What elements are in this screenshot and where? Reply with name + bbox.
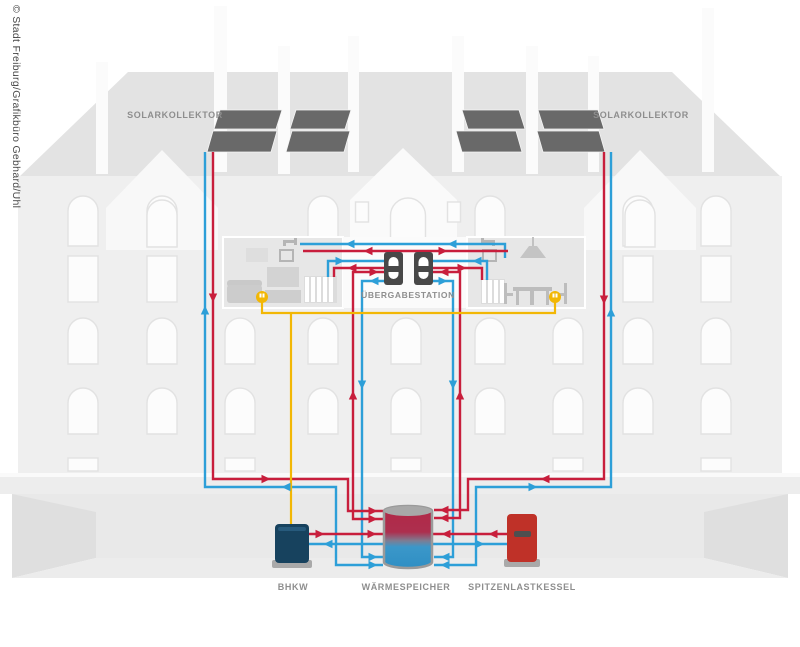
- window: [391, 318, 421, 364]
- window: [68, 458, 98, 471]
- window: [308, 318, 338, 364]
- window: [147, 200, 177, 247]
- window: [391, 388, 421, 434]
- label-solar-left: SOLARKOLLEKTOR: [127, 110, 223, 120]
- outlet-icon-right: [549, 291, 561, 303]
- window: [147, 318, 177, 364]
- label-chp: BHKW: [278, 582, 308, 592]
- solar-panel: [286, 131, 350, 152]
- window: [147, 256, 177, 302]
- solar-panel: [456, 131, 522, 152]
- transfer-unit-right: [414, 252, 433, 285]
- chimney: [96, 62, 108, 174]
- window: [701, 196, 731, 246]
- solar-panel: [290, 110, 351, 129]
- window: [701, 458, 731, 471]
- window: [701, 318, 731, 364]
- radiator-left: [304, 276, 337, 303]
- solar-panel: [207, 131, 277, 152]
- boiler-vent: [514, 531, 531, 537]
- energy-system-diagram: © Stadt Freiburg/Grafikbüro Gebhard/Uhl …: [0, 0, 800, 647]
- sidewalk-edge: [0, 473, 800, 477]
- transfer-unit-left: [384, 252, 403, 285]
- window: [391, 458, 421, 471]
- sideboard: [265, 290, 301, 303]
- chimney: [348, 36, 359, 172]
- window: [68, 196, 98, 246]
- label-transfer-station: ÜBERGABESTATION: [361, 290, 455, 300]
- solar-panel: [462, 110, 525, 129]
- window: [701, 256, 731, 302]
- label-peak-boiler: SPITZENLASTKESSEL: [468, 582, 576, 592]
- sidewalk: [0, 477, 800, 494]
- window: [68, 388, 98, 434]
- window: [225, 388, 255, 434]
- window: [553, 388, 583, 434]
- window: [448, 202, 461, 222]
- peak-load-boiler-unit: [504, 514, 540, 567]
- window: [225, 458, 255, 471]
- window: [701, 388, 731, 434]
- window: [625, 200, 655, 247]
- chp-top-detail: [278, 527, 306, 531]
- sofa: [227, 285, 262, 303]
- window: [147, 388, 177, 434]
- window: [553, 318, 583, 364]
- radiator-right: [481, 279, 505, 304]
- label-heat-storage: WÄRMESPEICHER: [362, 582, 451, 592]
- chp-unit: [272, 524, 312, 568]
- diagram-canvas: [0, 0, 800, 647]
- tv-cabinet: [267, 267, 299, 287]
- window: [68, 256, 98, 302]
- window: [391, 198, 426, 242]
- solar-panel: [537, 131, 605, 152]
- window: [356, 202, 369, 222]
- window: [68, 318, 98, 364]
- picture-frame: [246, 248, 268, 262]
- window: [623, 256, 653, 302]
- chimney: [702, 8, 714, 172]
- window: [308, 388, 338, 434]
- window: [475, 318, 505, 364]
- heat-storage-tank: [384, 506, 432, 568]
- window: [623, 388, 653, 434]
- window: [623, 318, 653, 364]
- solar-panel: [214, 110, 282, 129]
- window: [553, 458, 583, 471]
- chimney: [526, 46, 538, 174]
- image-credit: © Stadt Freiburg/Grafikbüro Gebhard/Uhl: [10, 5, 22, 208]
- label-solar-right: SOLARKOLLEKTOR: [593, 110, 689, 120]
- window: [475, 388, 505, 434]
- window: [225, 318, 255, 364]
- outlet-icon-left: [256, 291, 268, 303]
- boiler-body: [507, 514, 537, 562]
- tank-lid: [384, 506, 432, 516]
